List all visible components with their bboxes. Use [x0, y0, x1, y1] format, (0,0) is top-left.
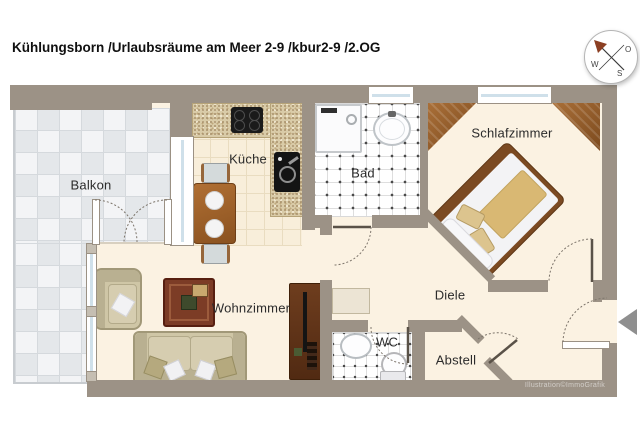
wall-bedroom-left [420, 103, 428, 215]
bath-sink [373, 112, 411, 146]
shelf-stack [307, 342, 317, 370]
sofa [133, 331, 247, 385]
room-label-hallway: Diele [435, 288, 466, 303]
balcony-floor-lower [13, 243, 88, 384]
bath-window [368, 86, 414, 104]
kitchen-window [170, 136, 194, 246]
wall-right-upper [602, 85, 617, 300]
wall-kitchen-bath [302, 103, 315, 230]
wall-hall-south-left [332, 320, 368, 332]
compass-west: W [591, 60, 599, 69]
balcony-door-threshold [96, 242, 165, 244]
table-plant [181, 295, 197, 310]
table-deco [192, 284, 208, 297]
room-label-bedroom: Schlafzimmer [471, 126, 552, 141]
wall-bedroom-south-stub [593, 280, 602, 302]
entrance-arrow-icon [618, 309, 637, 335]
faucet-icon [388, 111, 396, 117]
sink-basin [279, 166, 296, 183]
floorplan-page: Kühlungsborn /Urlaubsräume am Meer 2-9 /… [0, 0, 640, 427]
entrance-door-leaf [562, 341, 610, 349]
page-title: Kühlungsborn /Urlaubsräume am Meer 2-9 /… [12, 40, 380, 55]
shower [315, 104, 362, 153]
tv-wall-unit [289, 283, 322, 380]
cooktop [231, 107, 263, 133]
coffee-table [163, 278, 215, 327]
living-window-wall [86, 243, 97, 382]
compass-east: O [625, 45, 631, 54]
wall-wc-storage [412, 332, 425, 380]
compass: O S W [584, 30, 638, 84]
room-label-kitchen: Küche [229, 152, 267, 167]
wc-sink [340, 333, 372, 359]
window-glass [372, 94, 410, 97]
kitchen-sink [274, 152, 300, 192]
shower-drain [346, 114, 357, 125]
sink-dot [278, 157, 282, 161]
wall-kitchen-balcony [170, 103, 192, 136]
hall-cabinet [332, 288, 370, 314]
wall-hall-south-right [408, 320, 462, 332]
chair [201, 244, 230, 264]
wall-bedroom-south [488, 280, 548, 292]
balcony-door-leaf-left [92, 199, 100, 245]
window-glass [181, 140, 184, 242]
plate [205, 191, 224, 210]
room-label-balcony: Balkon [71, 178, 112, 193]
shelf-item-green [294, 348, 302, 356]
chair [201, 163, 230, 183]
window-post [86, 306, 97, 317]
plate [205, 219, 224, 238]
wall-top-balcony-step [10, 103, 152, 110]
window-glass [481, 94, 548, 97]
burner-icon [234, 120, 245, 131]
room-label-bath: Bad [351, 166, 375, 181]
burner-icon [249, 120, 260, 131]
bedroom-window [477, 86, 552, 104]
faucet-icon [288, 156, 299, 165]
watermark: Illustration©ImmoGrafik [505, 382, 605, 389]
compass-rose-icon: O S W [585, 31, 637, 83]
room-label-storage: Abstell [436, 353, 476, 368]
balcony-door-leaf-right [164, 199, 172, 245]
room-label-wc: WC [376, 335, 398, 350]
wall-living-hall-stub [320, 215, 332, 235]
shower-faucet-icon [321, 108, 337, 113]
wall-living-hall [320, 280, 332, 380]
wall-bath-south-right [372, 215, 428, 228]
entrance-opening [602, 300, 617, 343]
compass-south: S [617, 69, 622, 78]
window-post [86, 371, 97, 382]
bath-sink-inner [379, 118, 405, 140]
armchair [93, 268, 142, 330]
dining-table [193, 183, 236, 244]
room-label-living: Wohnzimmer [212, 301, 290, 316]
